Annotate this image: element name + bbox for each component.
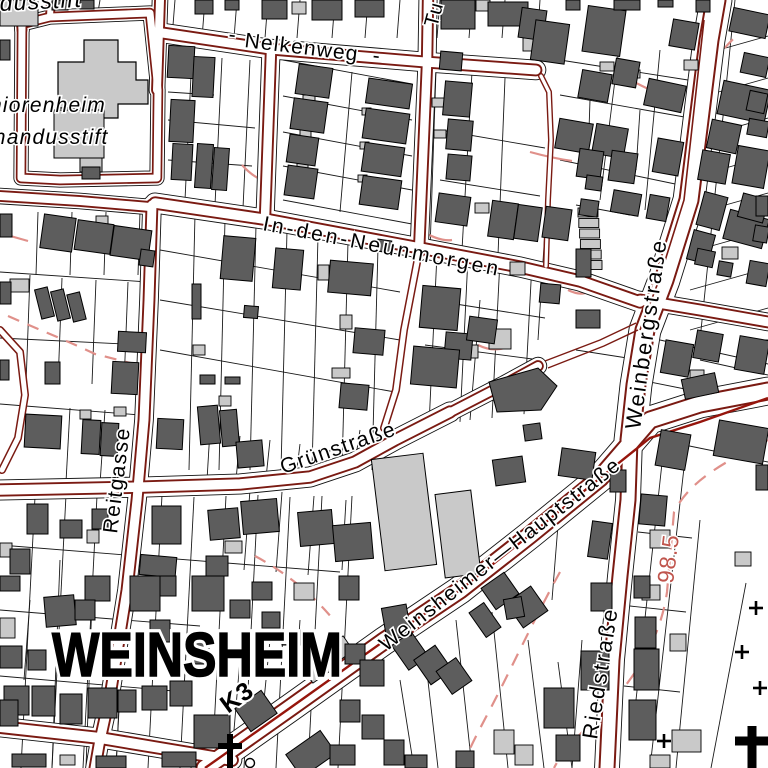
svg-text:niorenheim: niorenheim (0, 94, 106, 117)
svg-text:mandusstift: mandusstift (0, 126, 109, 149)
svg-text:WEINSHEIM: WEINSHEIM (52, 621, 342, 690)
